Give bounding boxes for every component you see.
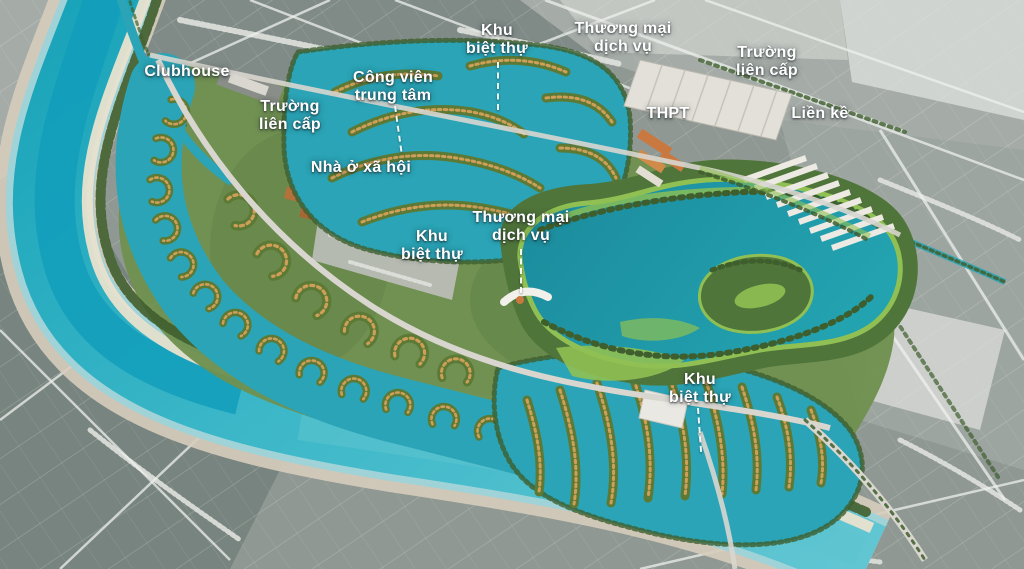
map-label-khu-biet-thu-north: Khubiệt thự xyxy=(466,22,528,58)
map-label-line: liên cấp xyxy=(259,116,321,134)
map-label-clubhouse: Clubhouse xyxy=(144,63,229,81)
map-label-line: Khu xyxy=(466,22,528,40)
map-label-line: Khu xyxy=(669,371,731,389)
map-label-thuong-mai-dich-vu-central: Thương mạidịch vụ xyxy=(472,209,569,245)
map-label-line: Clubhouse xyxy=(144,63,229,81)
map-label-line: Thương mại xyxy=(472,209,569,227)
map-label-lien-ke: Liền kề xyxy=(791,105,848,123)
map-label-line: biệt thự xyxy=(669,389,731,407)
leader-line-cong-vien-trung-tam xyxy=(394,106,402,152)
map-label-line: THPT xyxy=(647,105,690,123)
map-label-khu-biet-thu-south: Khubiệt thự xyxy=(669,371,731,407)
map-label-thpt: THPT xyxy=(647,105,690,123)
map-label-line: biệt thự xyxy=(466,40,528,58)
map-label-line: Thương mại xyxy=(574,20,671,38)
map-label-truong-lien-cap-west: Trườngliên cấp xyxy=(259,98,321,134)
map-label-thuong-mai-dich-vu-north: Thương mạidịch vụ xyxy=(574,20,671,56)
map-label-line: Công viên xyxy=(353,69,433,87)
map-labels-layer: ClubhouseTrườngliên cấpCông viêntrung tâ… xyxy=(0,0,1024,569)
masterplan-aerial-view: ClubhouseTrườngliên cấpCông viêntrung tâ… xyxy=(0,0,1024,569)
map-label-line: Trường xyxy=(736,44,798,62)
leader-line-thuong-mai-dich-vu-central xyxy=(520,249,522,293)
map-label-cong-vien-trung-tam: Công viêntrung tâm xyxy=(353,69,433,105)
leader-line-khu-biet-thu-south xyxy=(697,408,702,452)
map-label-truong-lien-cap-east: Trườngliên cấp xyxy=(736,44,798,80)
map-label-khu-biet-thu-west: Khubiệt thự xyxy=(401,228,463,264)
map-label-line: Liền kề xyxy=(791,105,848,123)
map-label-line: Nhà ở xã hội xyxy=(311,159,411,177)
map-label-line: Khu xyxy=(401,228,463,246)
map-label-nha-o-xa-hoi: Nhà ở xã hội xyxy=(311,159,411,177)
map-label-line: Trường xyxy=(259,98,321,116)
leader-line-khu-biet-thu-north xyxy=(497,62,499,110)
map-label-line: liên cấp xyxy=(736,62,798,80)
map-label-line: dịch vụ xyxy=(472,227,569,245)
map-label-line: biệt thự xyxy=(401,246,463,264)
map-label-line: dịch vụ xyxy=(574,38,671,56)
map-label-line: trung tâm xyxy=(353,87,433,105)
